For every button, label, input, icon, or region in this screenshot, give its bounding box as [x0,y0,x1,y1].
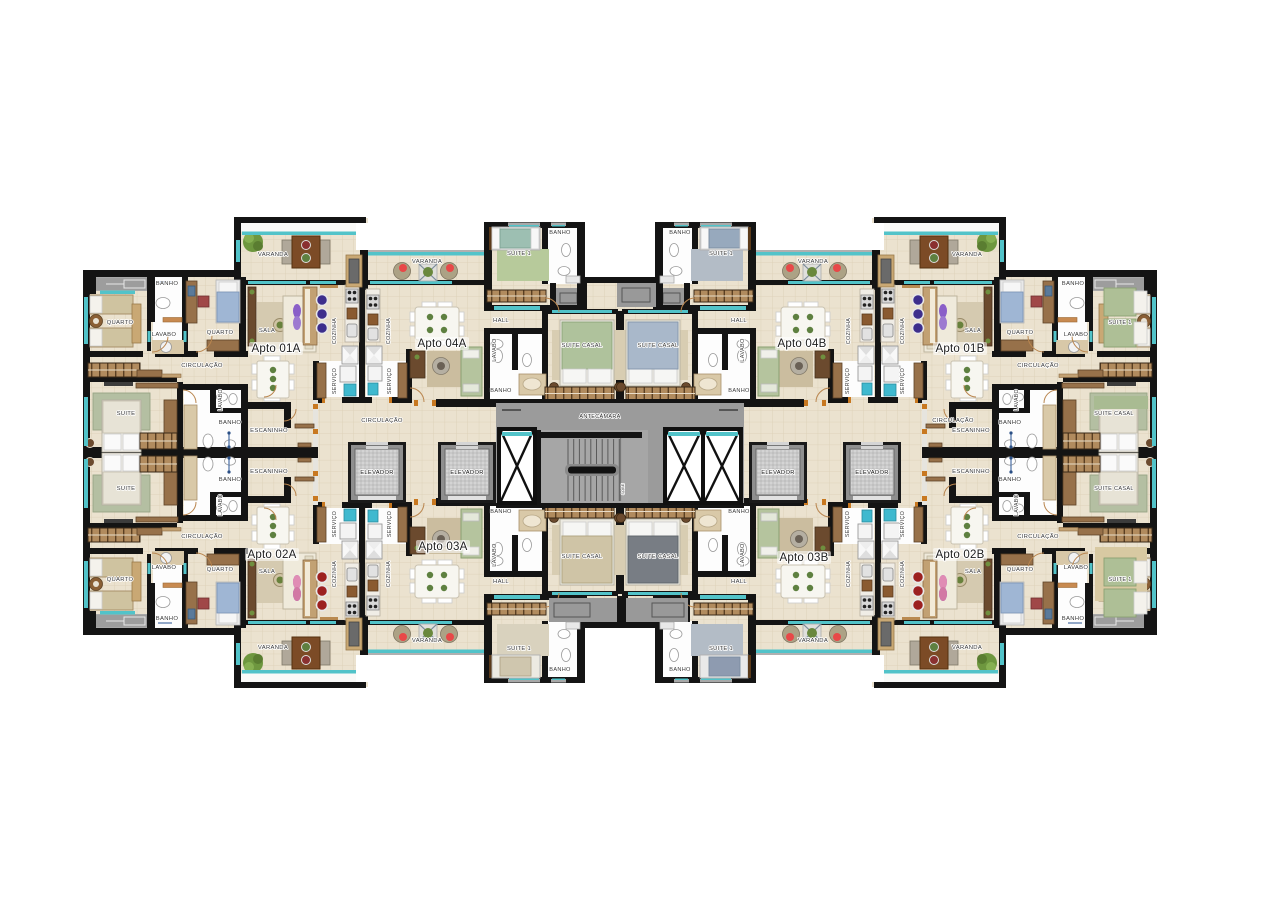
svg-text:ESCANINHO: ESCANINHO [250,428,288,434]
svg-text:BANHO: BANHO [999,420,1022,426]
svg-text:COZINHA: COZINHA [386,318,392,344]
svg-text:Apto 03A: Apto 03A [419,541,468,553]
svg-text:SALA: SALA [259,569,275,575]
svg-text:LAVABO: LAVABO [218,389,224,411]
svg-text:BANHO: BANHO [490,388,512,394]
svg-text:SOBE: SOBE [621,483,625,494]
svg-text:SALA: SALA [259,328,275,334]
svg-text:BANHO: BANHO [669,667,691,673]
svg-text:HALL: HALL [731,579,747,585]
svg-text:ESCANINHO: ESCANINHO [250,469,288,475]
svg-text:SERVIÇO: SERVIÇO [332,511,338,537]
svg-text:SUITE 1: SUITE 1 [709,251,733,257]
svg-text:QUARTO: QUARTO [1007,567,1034,573]
svg-text:QUARTO: QUARTO [207,330,234,336]
svg-text:SALA: SALA [965,328,981,334]
svg-text:SERVIÇO: SERVIÇO [900,368,906,394]
svg-text:ELEVADOR: ELEVADOR [360,470,394,476]
svg-text:LAVABO: LAVABO [1064,565,1089,571]
svg-text:SERVIÇO: SERVIÇO [332,368,338,394]
svg-text:SUITE CASAL: SUITE CASAL [638,343,679,349]
svg-text:QUARTO: QUARTO [1007,330,1034,336]
svg-text:Apto 01B: Apto 01B [936,343,985,355]
svg-text:SERVIÇO: SERVIÇO [845,511,851,537]
svg-text:Apto 03B: Apto 03B [780,552,829,564]
svg-text:SUITE CASAL: SUITE CASAL [1094,486,1134,492]
svg-text:BANHO: BANHO [999,477,1022,483]
svg-text:SUITE 1: SUITE 1 [709,646,733,652]
svg-text:ELEVADOR: ELEVADOR [761,470,795,476]
svg-text:SUITE CASAL: SUITE CASAL [562,554,603,560]
svg-text:CIRCULAÇÃO: CIRCULAÇÃO [1017,533,1059,540]
svg-text:Apto 02A: Apto 02A [248,549,297,561]
svg-text:QUARTO: QUARTO [107,577,134,583]
svg-text:VARANDA: VARANDA [798,259,828,265]
svg-text:HALL: HALL [493,579,509,585]
svg-text:VARANDA: VARANDA [952,645,982,651]
svg-text:SUITE: SUITE [117,411,136,417]
svg-text:COZINHA: COZINHA [332,318,338,344]
svg-text:SUITE 1: SUITE 1 [1108,577,1131,583]
svg-text:ESCANINHO: ESCANINHO [952,469,990,475]
svg-text:LAVABO: LAVABO [740,543,746,567]
svg-text:BANHO: BANHO [549,230,571,236]
svg-text:BANHO: BANHO [669,230,691,236]
svg-text:BANHO: BANHO [549,667,571,673]
svg-text:COZINHA: COZINHA [900,561,906,587]
svg-text:ANTECÂMARA: ANTECÂMARA [579,413,620,420]
svg-text:LAVABO: LAVABO [218,494,224,516]
svg-text:BANHO: BANHO [1062,616,1085,622]
svg-text:COZINHA: COZINHA [900,318,906,344]
svg-text:SUITE CASAL: SUITE CASAL [638,554,679,560]
svg-text:SERVIÇO: SERVIÇO [387,368,393,394]
svg-text:CIRCULAÇÃO: CIRCULAÇÃO [361,417,403,424]
svg-text:VARANDA: VARANDA [412,638,442,644]
svg-text:SUITE 1: SUITE 1 [1108,320,1131,326]
svg-text:BANHO: BANHO [728,388,750,394]
svg-text:VARANDA: VARANDA [258,252,288,258]
svg-text:SUITE CASAL: SUITE CASAL [1094,411,1134,417]
svg-text:LAVABO: LAVABO [152,332,177,338]
svg-text:COZINHA: COZINHA [846,561,852,587]
svg-text:VARANDA: VARANDA [952,252,982,258]
svg-text:QUARTO: QUARTO [207,567,234,573]
svg-text:SERVIÇO: SERVIÇO [387,511,393,537]
svg-text:CIRCULAÇÃO: CIRCULAÇÃO [181,533,223,540]
svg-text:SUITE: SUITE [117,486,136,492]
svg-text:BANHO: BANHO [156,616,179,622]
svg-text:VARANDA: VARANDA [798,638,828,644]
svg-text:ESCANINHO: ESCANINHO [952,428,990,434]
svg-text:CIRCULAÇÃO: CIRCULAÇÃO [1017,362,1059,369]
svg-text:COZINHA: COZINHA [332,561,338,587]
svg-text:SUITE 1: SUITE 1 [507,251,531,257]
svg-text:COZINHA: COZINHA [846,318,852,344]
svg-text:BANHO: BANHO [156,281,179,287]
svg-text:Apto 02B: Apto 02B [936,549,985,561]
svg-text:LAVABO: LAVABO [492,338,498,362]
svg-text:Apto 01A: Apto 01A [252,343,301,355]
svg-text:SUITE 1: SUITE 1 [507,646,531,652]
svg-text:BANHO: BANHO [219,477,242,483]
svg-text:QUARTO: QUARTO [107,320,134,326]
svg-text:HALL: HALL [493,318,509,324]
svg-text:LAVABO: LAVABO [1064,332,1089,338]
svg-text:BANHO: BANHO [490,509,512,515]
svg-text:LAVABO: LAVABO [1014,389,1020,411]
svg-text:LAVABO: LAVABO [1014,494,1020,516]
svg-text:SERVIÇO: SERVIÇO [900,511,906,537]
svg-text:LAVABO: LAVABO [152,565,177,571]
svg-text:BANHO: BANHO [219,420,242,426]
svg-text:HALL: HALL [731,318,747,324]
svg-text:VARANDA: VARANDA [258,645,288,651]
svg-text:BANHO: BANHO [728,509,750,515]
svg-text:VARANDA: VARANDA [412,259,442,265]
svg-text:COZINHA: COZINHA [386,561,392,587]
svg-text:ELEVADOR: ELEVADOR [855,470,889,476]
svg-text:SUITE CASAL: SUITE CASAL [562,343,603,349]
svg-text:SALA: SALA [965,569,981,575]
svg-text:ELEVADOR: ELEVADOR [450,470,484,476]
svg-text:BANHO: BANHO [1062,281,1085,287]
svg-text:LAVABO: LAVABO [740,338,746,362]
svg-text:CIRCULAÇÃO: CIRCULAÇÃO [181,362,223,369]
svg-text:Apto 04A: Apto 04A [418,338,467,350]
svg-text:LAVABO: LAVABO [492,543,498,567]
svg-text:CIRCULAÇÃO: CIRCULAÇÃO [932,417,974,424]
svg-text:SERVIÇO: SERVIÇO [845,368,851,394]
svg-text:Apto 04B: Apto 04B [778,338,827,350]
